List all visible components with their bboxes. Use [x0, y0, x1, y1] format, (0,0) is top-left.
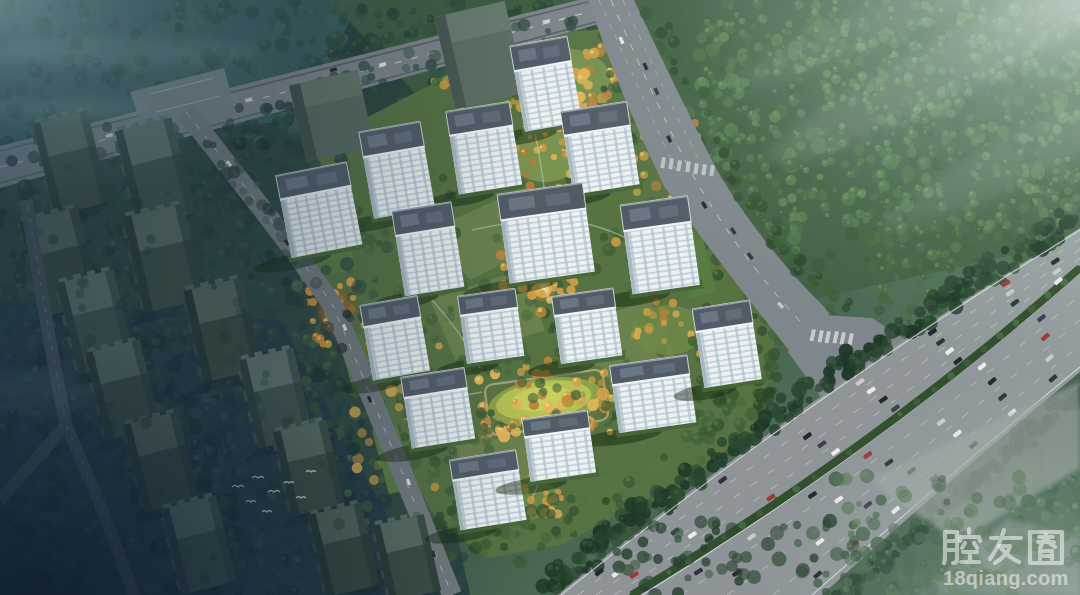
svg-text:18qiang.com: 18qiang.com — [943, 567, 1069, 589]
